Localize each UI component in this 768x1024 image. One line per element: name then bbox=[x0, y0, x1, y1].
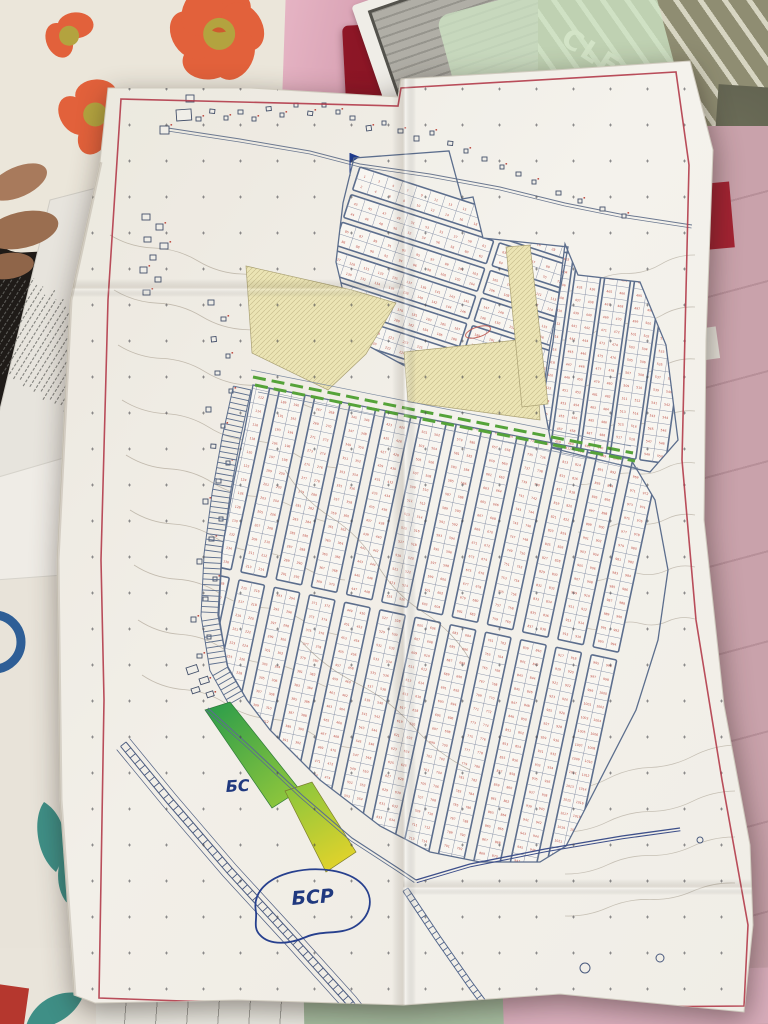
fold-crease-horizontal-right bbox=[403, 879, 755, 895]
fold-crease-vertical bbox=[392, 60, 416, 1015]
fold-crease-horizontal-left bbox=[57, 279, 403, 297]
cadastral-map-sheet: 1234567891011121314151617181920212223242… bbox=[0, 0, 768, 1024]
map-content: 1234567891011121314151617181920212223242… bbox=[57, 60, 757, 1024]
photo-of-cadastral-map-on-bed: CLEAR BAG bbox=[0, 0, 768, 1024]
